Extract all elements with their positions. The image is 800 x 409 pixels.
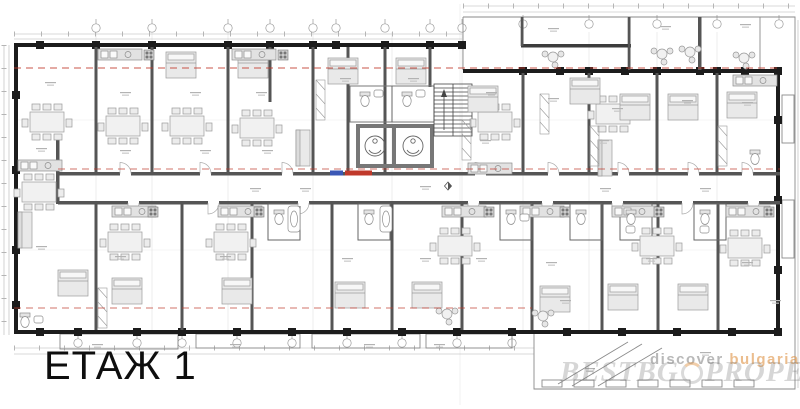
- plan-symbol: [508, 328, 516, 336]
- plan-symbol: [296, 130, 310, 166]
- plan-symbol: [468, 86, 498, 112]
- plan-symbol: [120, 150, 131, 154]
- plan-symbol: [144, 50, 154, 60]
- plan-symbol: [576, 210, 586, 225]
- furniture-symbols: [14, 46, 777, 328]
- plan-symbol: [232, 49, 276, 60]
- plan-symbol: [256, 92, 267, 96]
- plan-symbol: [560, 207, 570, 217]
- plan-symbol: [476, 258, 487, 262]
- plan-symbol: [728, 328, 736, 336]
- plan-symbol: [222, 278, 252, 304]
- plan-symbol: [374, 90, 383, 97]
- plan-symbol: [343, 328, 351, 336]
- door-swings: [120, 163, 759, 215]
- plan-symbol: [300, 188, 311, 192]
- plan-symbol: [98, 108, 148, 144]
- plan-symbol: [548, 98, 559, 102]
- plan-symbol: [120, 92, 131, 96]
- plan-symbol: [426, 19, 434, 32]
- blue-marker: [330, 171, 343, 176]
- plan-symbol: [764, 207, 774, 217]
- plan-symbol: [651, 48, 673, 65]
- plan-symbol: [520, 214, 529, 221]
- plan-symbol: [727, 92, 757, 118]
- plan-symbol: [774, 266, 782, 274]
- plan-symbol: [733, 52, 755, 69]
- plan-symbol: [673, 328, 681, 336]
- plan-symbol: [288, 328, 296, 336]
- floor-plan-page: ЕТАЖ 1 discover bulgaria BESTBG PROPERTI…: [0, 0, 800, 409]
- plan-symbol: [726, 206, 770, 217]
- plan-symbol: [232, 110, 282, 146]
- plan-symbol: [148, 19, 156, 32]
- plan-symbol: [700, 226, 709, 233]
- plan-symbol: [20, 313, 30, 328]
- plan-symbol: [540, 94, 549, 134]
- plan-symbol: [740, 24, 751, 28]
- plan-symbol: [332, 41, 340, 49]
- plan-symbol: [598, 140, 612, 176]
- plan-symbol: [398, 328, 406, 336]
- level-marker: [445, 182, 452, 190]
- plan-symbol: [654, 207, 664, 217]
- plan-symbol: [224, 19, 232, 32]
- plan-symbol: [600, 188, 611, 192]
- floor-title: ЕТАЖ 1: [44, 344, 197, 389]
- plan-symbol: [542, 51, 564, 68]
- elevator-core: [356, 124, 434, 168]
- plan-symbol: [626, 226, 635, 233]
- plan-symbol: [462, 120, 471, 160]
- plan-symbol: [278, 50, 288, 60]
- plan-symbol: [133, 328, 141, 336]
- plan-symbol: [200, 150, 211, 154]
- plan-symbol: [548, 28, 559, 32]
- plan-symbol: [570, 78, 600, 104]
- plan-symbol: [720, 230, 770, 266]
- plan-symbol: [608, 284, 638, 310]
- plan-symbol: [420, 258, 431, 262]
- plan-symbol: [36, 328, 44, 336]
- plan-symbol: [679, 46, 701, 63]
- plan-symbol: [396, 58, 426, 84]
- plan-symbol: [206, 224, 256, 260]
- plan-symbol: [468, 163, 512, 174]
- plan-symbol: [484, 207, 494, 217]
- plan-symbol: [380, 206, 392, 232]
- plan-symbol: [335, 282, 365, 308]
- plan-symbol: [733, 75, 777, 86]
- plan-symbol: [316, 80, 325, 120]
- plan-symbol: [74, 328, 82, 336]
- plan-symbol: [364, 344, 375, 348]
- plan-symbol: [288, 206, 300, 232]
- red-marker: [345, 171, 372, 176]
- staircase: [434, 84, 472, 136]
- plan-symbol: [532, 310, 554, 327]
- plan-symbol: [442, 206, 486, 217]
- plan-symbol: [420, 186, 431, 190]
- plan-symbol: [618, 328, 626, 336]
- plan-symbol: [458, 19, 466, 32]
- plan-symbol: [364, 210, 374, 225]
- plan-symbol: [332, 19, 340, 32]
- plan-symbol: [250, 188, 261, 192]
- plan-symbol: [34, 316, 43, 323]
- plan-symbol: [412, 282, 442, 308]
- plan-symbol: [36, 246, 47, 250]
- plan-symbol: [18, 212, 32, 248]
- plan-symbol: [774, 116, 782, 124]
- plan-symbol: [266, 19, 274, 32]
- plan-symbol: [36, 148, 47, 152]
- plan-symbol: [328, 58, 358, 84]
- plan-symbol: [546, 262, 557, 266]
- watermark-big-right: PROPERTIES: [705, 356, 800, 389]
- plan-symbol: [166, 52, 196, 78]
- plan-symbol: [148, 207, 158, 217]
- watermark-logo-ring-icon: [681, 362, 703, 384]
- plan-symbol: [678, 284, 708, 310]
- plan-symbol: [190, 92, 201, 96]
- plan-symbol: [506, 210, 516, 225]
- watermark-big-left: BESTBG: [560, 356, 679, 389]
- plan-symbol: [254, 207, 264, 217]
- plan-symbol: [162, 108, 212, 144]
- plan-symbol: [416, 90, 425, 97]
- plan-symbol: [430, 228, 480, 264]
- plan-symbol: [480, 140, 491, 144]
- section-cut-lines: [14, 68, 780, 308]
- plan-symbol: [92, 19, 100, 32]
- plan-symbol: [620, 94, 650, 120]
- plan-symbol: [36, 41, 44, 49]
- watermark-bestbg-properties: BESTBG PROPERTIES: [560, 356, 800, 389]
- plan-symbol: [22, 104, 72, 140]
- plan-symbol: [45, 82, 56, 86]
- plan-symbol: [700, 188, 711, 192]
- plan-symbol: [402, 92, 412, 107]
- plan-symbol: [233, 328, 241, 336]
- plan-symbol: [342, 258, 353, 262]
- plan-symbol: [262, 150, 273, 154]
- plan-symbol: [563, 328, 571, 336]
- plan-symbol: [774, 328, 782, 336]
- plan-symbol: [112, 278, 142, 304]
- plan-symbol: [12, 91, 20, 99]
- plan-symbol: [309, 19, 317, 32]
- plan-symbol: [718, 126, 727, 166]
- plan-symbol: [540, 286, 570, 312]
- plan-symbol: [360, 92, 370, 107]
- plan-symbol: [18, 160, 62, 171]
- plan-symbol: [100, 224, 150, 260]
- plan-symbol: [750, 150, 760, 165]
- plan-symbol: [458, 41, 466, 49]
- plan-symbol: [436, 308, 458, 325]
- plan-symbol: [700, 210, 710, 225]
- plan-symbol: [453, 328, 461, 336]
- plan-symbol: [381, 19, 389, 32]
- plan-symbol: [58, 270, 88, 296]
- plan-symbol: [98, 49, 142, 60]
- plan-symbol: [274, 210, 284, 225]
- plan-symbol: [660, 26, 671, 30]
- plan-symbol: [668, 94, 698, 120]
- plan-symbol: [626, 210, 636, 225]
